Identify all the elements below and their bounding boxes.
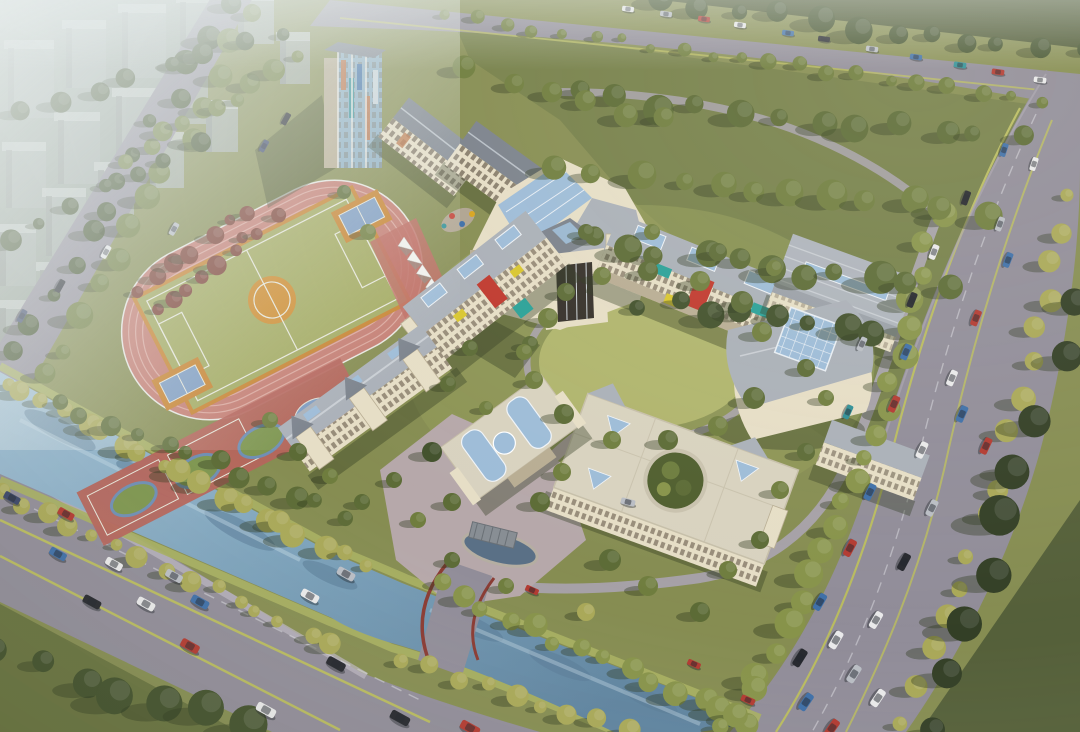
campus-aerial-rendering (0, 0, 1080, 732)
scene-canvas (0, 0, 1080, 732)
lighting-overlay (0, 0, 1080, 732)
